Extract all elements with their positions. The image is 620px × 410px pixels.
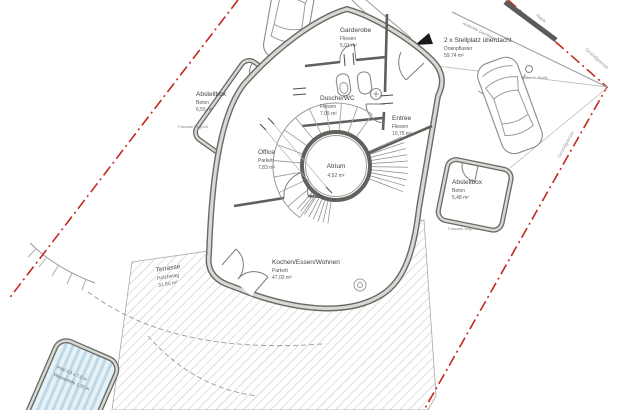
pool: Pool 3,5 x 7,0 m Wassertiefe 1,35 m xyxy=(8,337,121,410)
site-plan-page: Pool 3,5 x 7,0 m Wassertiefe 1,35 m Grun… xyxy=(0,0,620,410)
abstellbox-left-material: Beton xyxy=(196,100,209,106)
dusche-material: Fliesen xyxy=(320,104,336,110)
site-plan-drawing: Pool 3,5 x 7,0 m Wassertiefe 1,35 m Grun… xyxy=(0,0,620,410)
garderobe-name: Garderobe xyxy=(340,27,371,34)
pool-basin xyxy=(8,337,121,410)
office-material: Parkett xyxy=(258,158,274,164)
entree-area: 10,75 m² xyxy=(392,131,412,137)
abstellbox-right-material: Beton xyxy=(452,188,465,194)
wohnen-area: 47,02 m² xyxy=(272,275,292,281)
abstellbox-right-area: 5,48 m² xyxy=(452,195,469,201)
boundary-label-right: Grundgrenze xyxy=(557,130,577,159)
abstellbox-left-area: 6,55 m² xyxy=(196,107,213,113)
garderobe-area: 5,01 m² xyxy=(340,43,357,49)
hedge-teeth xyxy=(28,249,86,290)
drain-label: Rigole xyxy=(535,13,548,24)
car-right xyxy=(470,52,549,158)
wohnen-name: Kochen/Essen/Wohnen xyxy=(272,259,340,266)
carport-label-area: 59,74 m² xyxy=(444,53,464,59)
carport-label-material: Drainpflaster xyxy=(444,46,473,52)
abstellbox-left-note: Fassade begrünt xyxy=(178,124,209,129)
entree-material: Fliesen xyxy=(392,124,408,130)
boundary-label-top: Grundgrenze xyxy=(584,47,610,71)
abstellbox-left-name: Abstellbox xyxy=(196,91,227,98)
entrance-arrow-icon xyxy=(415,33,433,45)
garderobe-material: Fliesen xyxy=(340,36,356,42)
carport-label-name: 2 x Stellplatz überdacht xyxy=(444,37,512,44)
dusche-area: 7,05 m² xyxy=(320,111,337,117)
atrium-name: Atrium xyxy=(327,163,346,170)
abstellbox-right-note: Fassade begrünt xyxy=(448,226,479,231)
dusche-name: Dusche/WC xyxy=(320,95,355,102)
entree-name: Entree xyxy=(392,115,412,122)
atrium-area: 4,52 m² xyxy=(328,173,345,179)
office-area: 7,83 m² xyxy=(258,165,275,171)
drain-channel xyxy=(505,2,556,40)
office-name: Office xyxy=(258,149,275,156)
carport-column xyxy=(526,66,533,73)
storage-box-right: Abstellbox Beton 5,48 m² Fassade begrünt xyxy=(437,158,513,232)
hedge-line xyxy=(30,243,95,283)
abstellbox-right-name: Abstellbox xyxy=(452,179,483,186)
column-note: Stütze lt. Statik xyxy=(521,75,548,80)
wohnen-material: Parkett xyxy=(272,268,288,274)
